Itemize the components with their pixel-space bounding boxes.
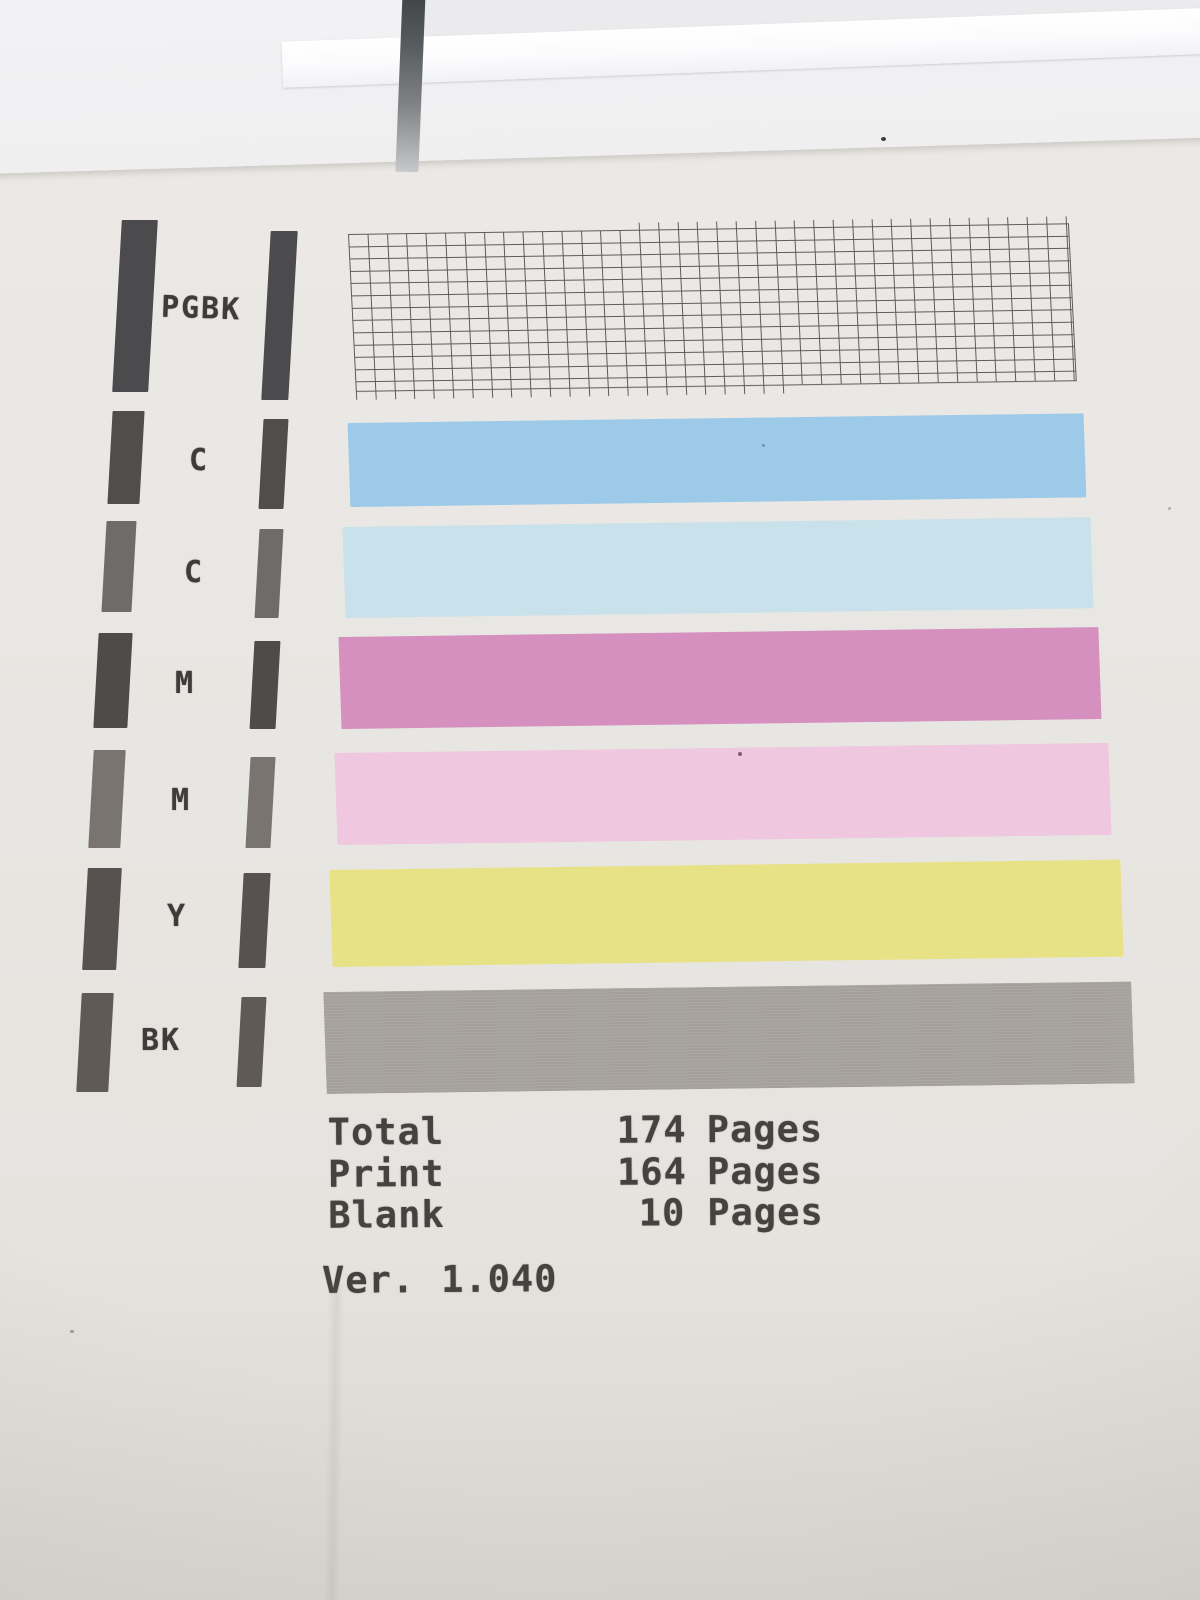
counter-unit: Pages — [707, 1108, 824, 1150]
ink-stripe-cyan — [348, 413, 1087, 507]
ink-stripe-yellow — [329, 860, 1123, 967]
ink-label-black: BK — [141, 1023, 181, 1058]
ink-label-magenta: M — [175, 666, 195, 701]
alignment-bar-right — [238, 873, 270, 968]
dust-speck — [1168, 507, 1171, 510]
paper-crease-shadow — [324, 1285, 344, 1600]
version-value: 1.040 — [441, 1257, 558, 1301]
ink-label-cyan: C — [189, 443, 209, 478]
alignment-bar-left — [112, 220, 158, 392]
counter-label: Total — [328, 1110, 617, 1154]
photo-printer-test-page: PGBK C C M M Y BK — [0, 0, 1200, 1600]
pgbk-nozzle-grid — [348, 223, 1077, 392]
alignment-bar-left — [82, 868, 122, 970]
alignment-bar-left — [76, 993, 114, 1092]
counter-label: Print — [328, 1151, 617, 1195]
alignment-bar-right — [250, 641, 281, 729]
counter-unit: Pages — [707, 1150, 824, 1192]
alignment-bar-right — [258, 419, 288, 509]
firmware-version: Ver.1.040 — [322, 1257, 558, 1302]
alignment-bar-right — [255, 529, 284, 618]
counter-row-total: Total174Pages — [328, 1108, 824, 1153]
alignment-bar-left — [101, 521, 136, 612]
counter-label: Blank — [328, 1193, 617, 1237]
page-counters: Total174Pages Print164Pages Blank10Pages — [328, 1108, 824, 1236]
counter-unit: Pages — [707, 1191, 824, 1233]
ink-stripe-magenta — [338, 627, 1101, 729]
dust-speck — [738, 752, 742, 756]
printer-output-area — [0, 0, 1200, 235]
ink-label-light-magenta: M — [171, 783, 191, 818]
ink-label-pgbk: PGBK — [160, 290, 241, 328]
dust-speck — [762, 444, 765, 447]
ink-stripe-light-cyan — [342, 517, 1093, 618]
alignment-bar-right — [261, 231, 297, 400]
counter-row-print: Print164Pages — [328, 1150, 824, 1195]
alignment-bar-left — [88, 750, 125, 848]
dust-speck — [881, 137, 886, 141]
counter-value: 10 — [617, 1192, 685, 1234]
alignment-bar-right — [245, 757, 275, 848]
counter-row-blank: Blank10Pages — [328, 1191, 824, 1236]
ink-stripe-light-magenta — [334, 743, 1111, 845]
alignment-bar-left — [93, 633, 132, 728]
alignment-bar-left — [107, 411, 144, 504]
counter-value: 164 — [617, 1151, 685, 1193]
ink-stripe-gray-black — [323, 981, 1134, 1094]
ink-label-yellow: Y — [167, 899, 187, 934]
alignment-bar-right — [236, 997, 266, 1087]
dust-speck — [70, 1330, 74, 1333]
counter-value: 174 — [617, 1109, 685, 1151]
ink-label-light-cyan: C — [184, 555, 204, 590]
